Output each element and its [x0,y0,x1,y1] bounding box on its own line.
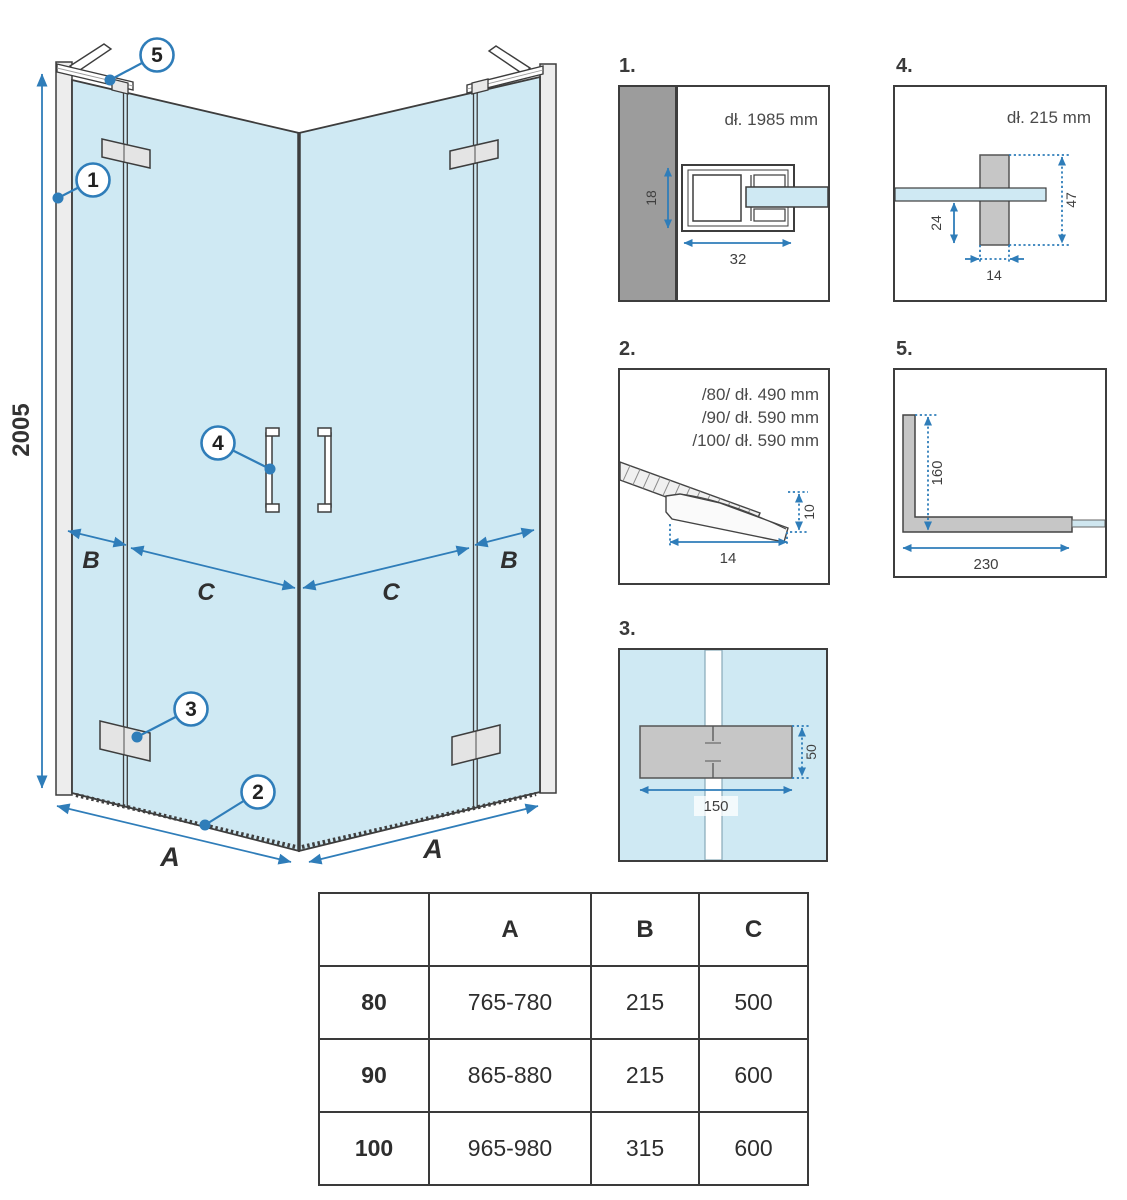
detail-number-2: 2. [619,338,636,361]
wall-profile-right [540,64,556,793]
table-header-empty [319,893,429,966]
table-cell-b: 215 [591,966,699,1039]
shower-isometric-drawing: 2005 B C C B A A 5 [0,0,580,890]
detail-number-3: 3. [619,618,636,641]
technical-diagram-canvas: 2005 B C C B A A 5 [0,0,1127,1200]
seal-length-80: /80/ dł. 490 mm [702,385,819,404]
size-table: A B C 80 765-780 215 500 90 865-880 215 … [318,892,809,1186]
table-cell-size: 100 [319,1112,429,1185]
dim-24: 24 [928,203,954,243]
glass-section [895,188,1046,201]
table-row: 80 765-780 215 500 [319,966,808,1039]
detail-number-1: 1. [619,55,636,78]
table-cell-a: 865-880 [429,1039,591,1112]
detail-4-drawing: dł. 215 mm 24 47 14 [895,87,1105,300]
dim-b-left-label: B [82,547,99,574]
glass-panel-right [299,77,540,851]
detail-number-5: 5. [896,338,913,361]
table-header-a: A [429,893,591,966]
wall-profile-left [56,62,72,795]
dim-230: 230 [903,548,1069,573]
table-row: 100 965-980 315 600 [319,1112,808,1185]
dim-10: 10 [788,492,817,532]
table-header-b: B [591,893,699,966]
wall-profile-section [682,165,828,231]
callout-5-number: 5 [151,44,163,67]
detail-1-drawing: dł. 1985 mm 18 32 [620,87,828,300]
table-cell-size: 80 [319,966,429,1039]
detail-box-2: /80/ dł. 490 mm /90/ dł. 590 mm /100/ dł… [618,368,830,585]
hinge-section [640,726,792,778]
table-cell-c: 600 [699,1039,808,1112]
callout-5: 5 [105,39,174,86]
detail-3-drawing: 50 150 [620,650,826,860]
table-cell-size: 90 [319,1039,429,1112]
dim-10-label: 10 [801,504,817,520]
dim-a-right-label: A [422,834,443,864]
detail-box-1: dł. 1985 mm 18 32 [618,85,830,302]
glass-section [746,187,828,207]
glass-edge-section [1072,520,1105,527]
callout-3-number: 3 [185,698,197,721]
dim-a-left-label: A [159,842,180,872]
dim-14: 14 [965,245,1024,283]
wall-surface-line [675,87,678,300]
dim-230-label: 230 [973,556,998,573]
dim-18-label: 18 [643,190,659,206]
callout-1-number: 1 [87,169,99,192]
detail-box-4: dł. 215 mm 24 47 14 [893,85,1107,302]
dim-b-right-label: B [500,547,517,574]
dim-47-label: 47 [1063,192,1079,208]
seal-length-90: /90/ dł. 590 mm [702,408,819,427]
dim-50-label: 50 [803,744,819,760]
table-cell-c: 600 [699,1112,808,1185]
dim-32: 32 [684,243,791,268]
callout-2-number: 2 [252,781,264,804]
dimension-height-2005: 2005 [8,74,42,788]
table-header-c: C [699,893,808,966]
table-cell-a: 765-780 [429,966,591,1039]
callout-4-number: 4 [212,432,224,455]
dim-14-label: 14 [720,550,737,567]
detail-1-length-label: dł. 1985 mm [724,110,818,129]
dim-14-label: 14 [986,267,1002,283]
table-cell-b: 215 [591,1039,699,1112]
detail-box-5: 160 230 [893,368,1107,578]
dim-24-label: 24 [928,215,944,231]
seal-length-100: /100/ dł. 590 mm [692,431,819,450]
dim-32-label: 32 [730,251,747,268]
dim-c-left-label: C [197,579,215,606]
table-cell-b: 315 [591,1112,699,1185]
table-header-row: A B C [319,893,808,966]
table-row: 90 865-880 215 600 [319,1039,808,1112]
detail-5-drawing: 160 230 [895,370,1105,576]
dim-160-label: 160 [929,460,946,485]
dim-150-label: 150 [703,798,728,815]
detail-2-drawing: /80/ dł. 490 mm /90/ dł. 590 mm /100/ dł… [620,370,828,583]
detail-4-length-label: dł. 215 mm [1007,108,1091,127]
detail-box-3: 50 150 [618,648,828,862]
height-dimension-label: 2005 [8,403,35,456]
table-cell-a: 965-980 [429,1112,591,1185]
dim-160: 160 [915,415,946,530]
dim-c-right-label: C [382,579,400,606]
table-cell-c: 500 [699,966,808,1039]
detail-number-4: 4. [896,55,913,78]
